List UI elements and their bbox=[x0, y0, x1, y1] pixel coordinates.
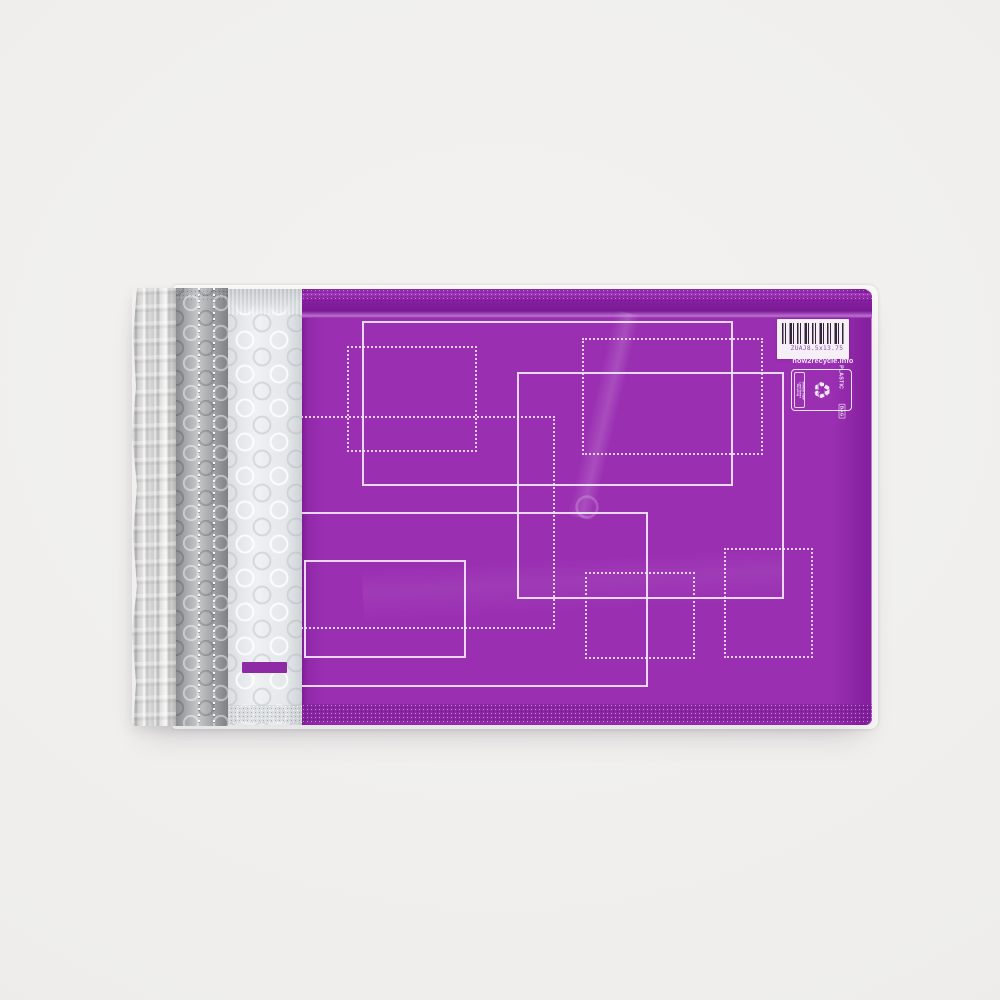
product-photo: ZUAJ8.5x13.75 how2recycle.info Remove Pa… bbox=[0, 0, 1000, 1000]
foil-flap bbox=[132, 288, 176, 726]
recycle-symbol-box: ♻ Store Drop-off bbox=[807, 372, 832, 408]
perforation-line bbox=[213, 288, 215, 726]
store-dropoff-text: Store Drop-off bbox=[816, 383, 823, 397]
seal-crimp-texture bbox=[228, 705, 302, 723]
recycle-qualifier-text: Remove Paper Label Before Recycling bbox=[795, 382, 804, 399]
how2recycle-label: Remove Paper Label Before Recycling ♻ St… bbox=[791, 369, 852, 411]
store-dropoff-line: Drop-off bbox=[816, 383, 820, 397]
gray-bubble-strip bbox=[176, 288, 228, 726]
barcode-label: ZUAJ8.5x13.75 bbox=[777, 319, 849, 359]
bubble-mailer: ZUAJ8.5x13.75 how2recycle.info Remove Pa… bbox=[132, 289, 872, 725]
adhesive-seal-band bbox=[228, 289, 302, 315]
recycle-material-box: PLASTIC BAG bbox=[834, 372, 849, 408]
material-format-group: PLASTIC BAG bbox=[836, 357, 847, 423]
seal-crimp-texture bbox=[176, 288, 228, 300]
front-panel: ZUAJ8.5x13.75 how2recycle.info Remove Pa… bbox=[302, 289, 872, 725]
seal-crimp-texture bbox=[302, 704, 872, 722]
recycle-qualifier-box: Remove Paper Label Before Recycling bbox=[794, 372, 805, 408]
pattern-rect-solid bbox=[304, 560, 466, 658]
pattern-rect-dotted bbox=[585, 572, 695, 659]
barcode-bars bbox=[782, 323, 844, 344]
white-bubble-strip bbox=[228, 289, 302, 725]
qualifier-line: Remove Paper bbox=[801, 382, 804, 399]
barcode-text: ZUAJ8.5x13.75 bbox=[791, 345, 836, 352]
purple-dash-mark bbox=[242, 662, 287, 673]
material-text: PLASTIC bbox=[839, 365, 845, 389]
seal-crimp-texture bbox=[302, 289, 872, 301]
perforation-line bbox=[198, 288, 200, 726]
format-text: BAG bbox=[838, 404, 845, 418]
qualifier-line: Recycling bbox=[795, 382, 798, 399]
pattern-rect-dotted bbox=[724, 548, 813, 658]
